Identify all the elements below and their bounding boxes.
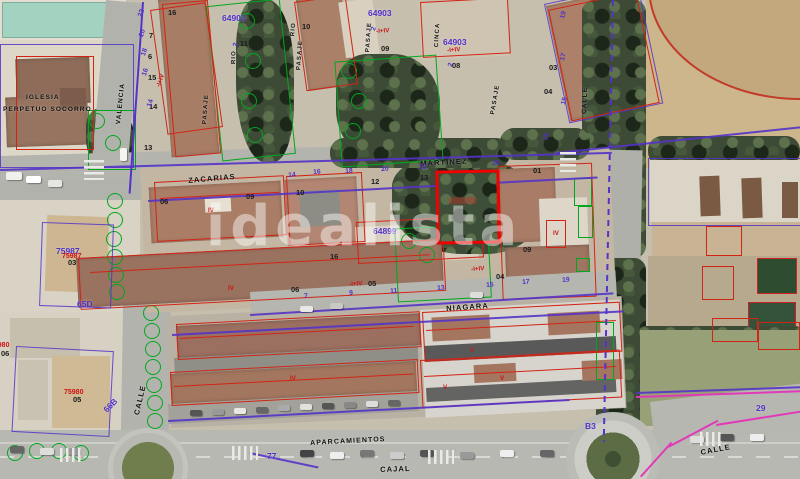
code-label: B3 — [585, 422, 596, 431]
rcode-label: 75980 — [0, 342, 9, 349]
pnum-label: 03 — [68, 259, 76, 267]
street-label: IGLESIA — [26, 95, 60, 102]
street-label: PASAJE — [296, 40, 304, 71]
snum-label: 26 — [492, 161, 500, 168]
street-label: CINCA — [434, 23, 441, 48]
snum-label: 18 — [345, 169, 353, 176]
street-label: PERPETUO SOCORRO — [3, 107, 92, 114]
pnum-label: 16 — [168, 9, 176, 17]
snum-label: 20 — [139, 29, 148, 38]
rnot-label: -I+IV — [447, 47, 461, 54]
pnum-label: 09 — [381, 45, 389, 53]
rnot-label: IV — [553, 231, 559, 237]
street-label: PASAJE — [202, 94, 210, 125]
rnot-label: IV — [228, 286, 234, 292]
code-label: 64903 — [443, 38, 467, 47]
rnot-label: IV — [290, 376, 296, 382]
pnum-label: 03 — [549, 64, 557, 72]
pnum-label: 09 — [523, 246, 531, 254]
snum-label: 22 — [138, 9, 147, 18]
pnum-label: 13 — [144, 144, 152, 152]
street-label: CAJAL — [380, 465, 411, 474]
code-label: 64903 — [222, 14, 246, 23]
pnum-label: 6 — [148, 53, 152, 61]
pnum-label: 05 — [73, 396, 81, 404]
map-canvas[interactable]: IGLESIAPERPETUO SOCORROVALENCIAZACARIASM… — [0, 0, 800, 479]
rnot-label: V — [470, 348, 474, 354]
pnum-label: 05 — [368, 280, 376, 288]
snum-label: 19 — [562, 277, 570, 284]
pnum-label: 15 — [148, 74, 156, 82]
snum-label: 20 — [381, 167, 389, 174]
code-label: 77 — [267, 452, 276, 461]
pnum-label: 01 — [533, 167, 541, 175]
pnum-label: 06 — [160, 198, 168, 206]
snum-label: 17 — [522, 279, 530, 286]
pnum-label: 06 — [1, 350, 9, 358]
street-label: MARTINEZ — [420, 158, 468, 168]
code-label: 64903 — [368, 9, 392, 18]
snum-label: 2 — [233, 42, 241, 47]
snum-label: 11 — [390, 288, 398, 295]
idealista-watermark: idealista — [206, 194, 522, 259]
street-label: CALLE — [700, 443, 731, 456]
street-label: ZACARIAS — [188, 173, 236, 185]
snum-label: 16 — [313, 170, 321, 177]
snum-label: 19 — [560, 11, 569, 20]
snum-label: 15 — [561, 97, 570, 106]
rnot-label: -I+IV — [471, 266, 485, 273]
street-label: CALLE — [582, 87, 589, 114]
snum-label: 14 — [288, 173, 296, 180]
street-label: PASAJE — [490, 84, 501, 115]
snum-label: 17 — [560, 53, 569, 62]
street-label: RIO — [290, 22, 297, 36]
rnot-label: V — [443, 385, 447, 391]
pnum-label: 11 — [240, 40, 248, 48]
snum-label: 2 — [448, 62, 456, 67]
pnum-label: 12 — [371, 178, 379, 186]
rnot-label: -I+IV — [376, 28, 390, 35]
snum-label: 22 — [419, 165, 427, 172]
pnum-label: 13 — [420, 174, 428, 182]
pnum-label: 06 — [291, 286, 299, 294]
street-label: VALENCIA — [116, 83, 127, 125]
pnum-label: 10 — [302, 23, 310, 31]
rnot-label: -I+IV — [349, 281, 363, 288]
snum-label: 15 — [543, 133, 552, 142]
street-label: APARCAMIENTOS — [310, 436, 386, 447]
code-label: 65D — [77, 300, 93, 309]
street-label: NIAGARA — [446, 302, 489, 312]
rnot-label: V — [500, 376, 504, 382]
pnum-label: 7 — [149, 32, 153, 40]
snum-label: 13 — [437, 285, 445, 292]
snum-label: 15 — [486, 282, 494, 289]
code-label: 29 — [756, 404, 765, 413]
pnum-label: 04 — [544, 88, 552, 96]
street-label: RIO — [231, 50, 237, 64]
pnum-label: 04 — [496, 273, 504, 281]
rnot-label: -I+IV — [156, 74, 166, 89]
street-label: CALLE — [133, 384, 147, 415]
code-label: 66B — [102, 397, 119, 414]
snum-label: 7 — [304, 294, 308, 301]
snum-label: 9 — [349, 291, 353, 298]
